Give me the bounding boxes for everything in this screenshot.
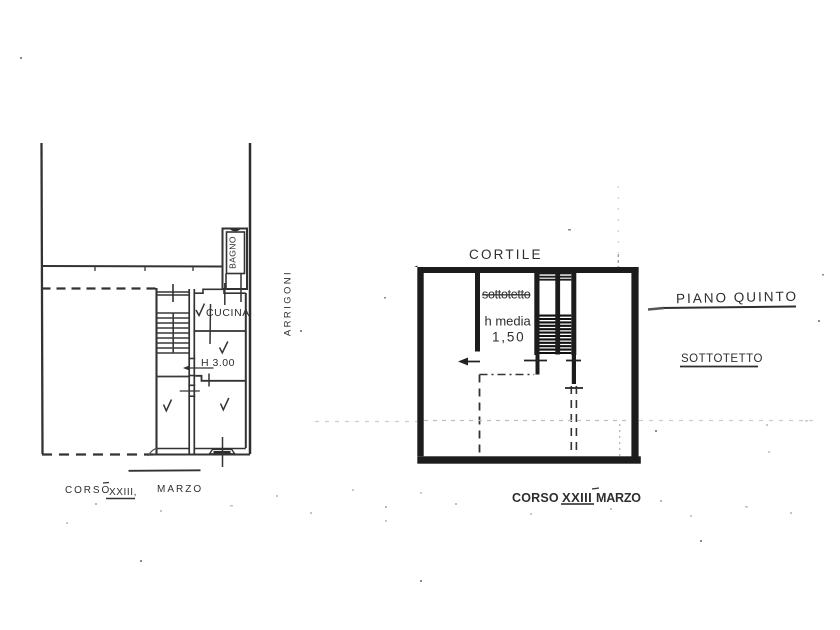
svg-text:CUCINA: CUCINA [206, 307, 250, 319]
svg-text:h media: h media [485, 314, 532, 329]
svg-text:MARZO: MARZO [157, 484, 203, 495]
svg-text:ARRIGONI: ARRIGONI [283, 270, 294, 336]
svg-text:1,50: 1,50 [492, 330, 525, 345]
svg-text:PIANO QUINTO: PIANO QUINTO [676, 289, 798, 307]
svg-text:BAGNO: BAGNO [228, 236, 238, 269]
svg-text:sottotetto: sottotetto [482, 288, 531, 302]
svg-text:SOTTOTETTO: SOTTOTETTO [681, 353, 763, 365]
svg-text:CORTILE: CORTILE [469, 247, 543, 262]
svg-text:H 3.00: H 3.00 [201, 357, 235, 369]
svg-text:CORSO: CORSO [65, 485, 111, 496]
svg-text:XXIII: XXIII [562, 490, 592, 505]
svg-text:CORSO: CORSO [512, 491, 559, 505]
svg-text:MARZO: MARZO [596, 491, 641, 505]
svg-text:XXIII,: XXIII, [109, 487, 137, 498]
